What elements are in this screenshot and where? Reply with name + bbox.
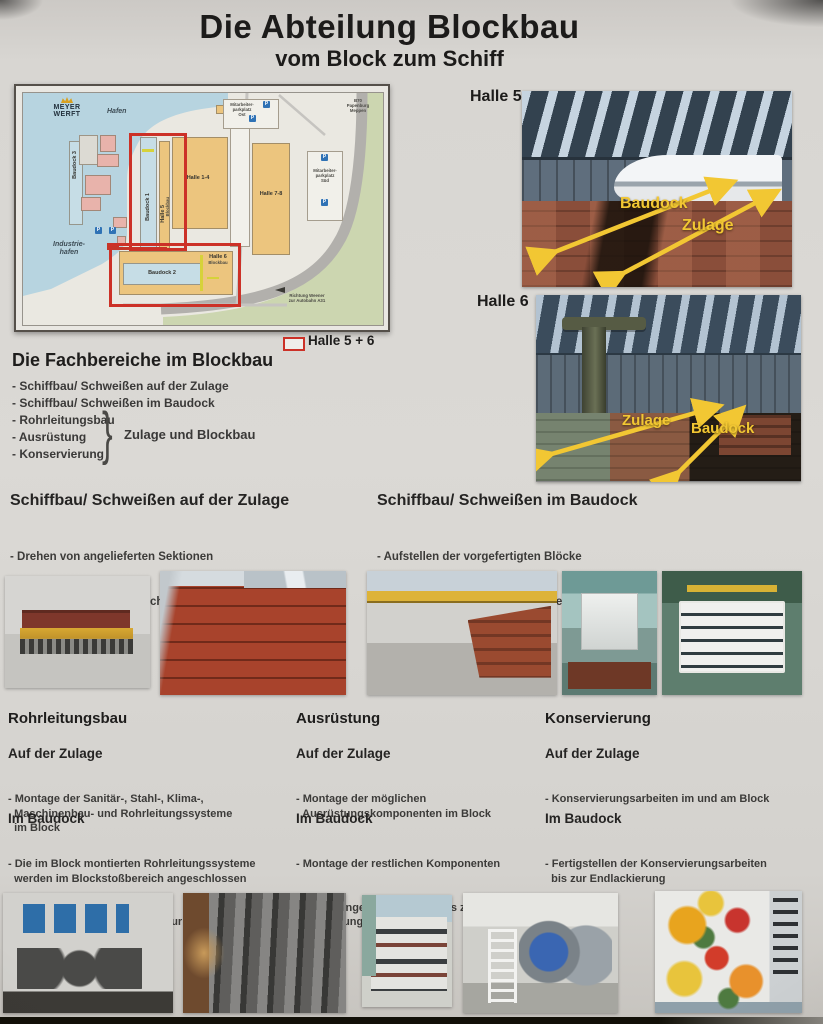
photo-panel-lift: [562, 571, 657, 695]
map-halle78: [252, 143, 290, 255]
halle5-label: Halle 5: [470, 88, 522, 106]
baudock-annotation: Baudock: [691, 420, 754, 437]
column-konservierung: Konservierung Auf der Zulage - Konservie…: [545, 710, 817, 890]
map-building: [97, 154, 119, 167]
list-item: - Schiffbau/ Schweißen im Baudock: [12, 395, 229, 412]
parking-icon: P: [249, 115, 256, 122]
map-label-baudock3: Baudock 3: [72, 151, 78, 179]
photo-pipe-systems: [3, 893, 173, 1013]
photo-block-transporter: [5, 576, 150, 688]
list-item: - Konservierung: [12, 446, 229, 463]
highlight-halle6-box: [109, 243, 241, 307]
baudock-section-heading: Schiffbau/ Schweißen im Baudock: [377, 492, 638, 510]
highlight-halle5-box: [129, 133, 187, 251]
photo-block-in-dock: [367, 571, 557, 695]
column-subheading: Auf der Zulage: [296, 746, 391, 761]
column-title: Rohrleitungsbau: [8, 710, 127, 727]
photo-duct-installation: [183, 893, 346, 1013]
map-building: [81, 197, 101, 211]
blockbau-poster: Die Abteilung Blockbau vom Block zum Sch…: [0, 0, 823, 1024]
fachbereiche-list: - Schiffbau/ Schweißen auf der Zulage - …: [12, 378, 229, 463]
column-subheading: Auf der Zulage: [545, 746, 640, 761]
list-item: - Schiffbau/ Schweißen auf der Zulage: [12, 378, 229, 395]
map-label-parkplatz-sued: Mitarbeiter- parkplatz Süd: [309, 169, 341, 184]
column-subheading: Im Baudock: [296, 811, 373, 826]
photo-edge: [0, 1017, 823, 1024]
zulage-annotation: Zulage: [622, 412, 670, 429]
list-item: - Die im Block montierten Rohrleitungssy…: [8, 857, 256, 886]
column-subheading: Im Baudock: [8, 811, 85, 826]
halle5-photo: Baudock Zulage: [522, 91, 792, 287]
annotation-arrows: [522, 91, 792, 287]
poster-subtitle: vom Block zum Schiff: [0, 46, 801, 72]
map-label-b70: B70 Papenburg Meppen: [337, 99, 379, 114]
map-label-richtung: Richtung Weener zur Autobahn A31: [269, 294, 345, 304]
zulage-annotation: Zulage: [682, 217, 734, 235]
list-item: - Drehen von angelieferten Sektionen: [10, 550, 223, 565]
legend-label: Halle 5 + 6: [308, 333, 374, 348]
parking-icon: P: [321, 199, 328, 206]
column-title: Ausrüstung: [296, 710, 380, 727]
map-label-halle78: Halle 7-8: [256, 191, 286, 197]
baudock-annotation: Baudock: [620, 195, 688, 213]
map-building: [230, 123, 250, 247]
map-building: [85, 175, 111, 195]
zulage-section-heading: Schiffbau/ Schweißen auf der Zulage: [10, 492, 289, 510]
parking-icon: P: [321, 154, 328, 161]
photo-superstructure-block: [662, 571, 802, 695]
list-item: - Konservierungsarbeiten im und am Block: [545, 792, 769, 807]
logo-crown-icon: [61, 97, 73, 103]
photo-painted-hull: [655, 891, 802, 1013]
column-subheading: Auf der Zulage: [8, 746, 103, 761]
annotation-arrows: [536, 295, 801, 482]
halle6-label: Halle 6: [477, 293, 529, 311]
parking-icon: P: [109, 227, 116, 234]
site-map-frame: MEYER WERFT Hafen Industrie- hafen Baudo…: [14, 84, 390, 332]
list-item: - Aufstellen der vorgefertigten Blöcke: [377, 550, 590, 565]
parking-icon: P: [95, 227, 102, 234]
halle6-photo: Zulage Baudock: [536, 295, 801, 482]
list-item: - Fertigstellen der Konservierungsarbeit…: [545, 857, 767, 886]
poster-title: Die Abteilung Blockbau: [0, 8, 801, 46]
map-parkplatz-sued: [307, 151, 343, 221]
fachbereiche-heading: Die Fachbereiche im Blockbau: [12, 350, 273, 371]
legend-swatch: [283, 337, 305, 351]
photo-deckhouse-blocks: [362, 895, 452, 1007]
site-map: MEYER WERFT Hafen Industrie- hafen Baudo…: [22, 92, 384, 326]
brace-label: Zulage und Blockbau: [124, 427, 255, 442]
map-building: [100, 135, 116, 152]
list-item: - Montage der restlichen Komponenten: [296, 857, 500, 872]
column-rohrleitungsbau: Rohrleitungsbau Auf der Zulage - Montage…: [8, 710, 290, 890]
column-title: Konservierung: [545, 710, 651, 727]
column-ausruestung: Ausrüstung Auf der Zulage - Montage der …: [296, 710, 548, 890]
photo-hull-block: [160, 571, 346, 695]
photo-mooring-winch: [463, 893, 618, 1013]
column-subheading: Im Baudock: [545, 811, 622, 826]
brace-glyph: [102, 406, 113, 462]
parking-icon: P: [263, 101, 270, 108]
map-label-industriehafen: Industrie- hafen: [45, 241, 93, 257]
meyer-werft-logo: MEYER WERFT: [47, 97, 87, 118]
map-building: [79, 135, 98, 165]
map-label-hafen: Hafen: [107, 108, 126, 116]
